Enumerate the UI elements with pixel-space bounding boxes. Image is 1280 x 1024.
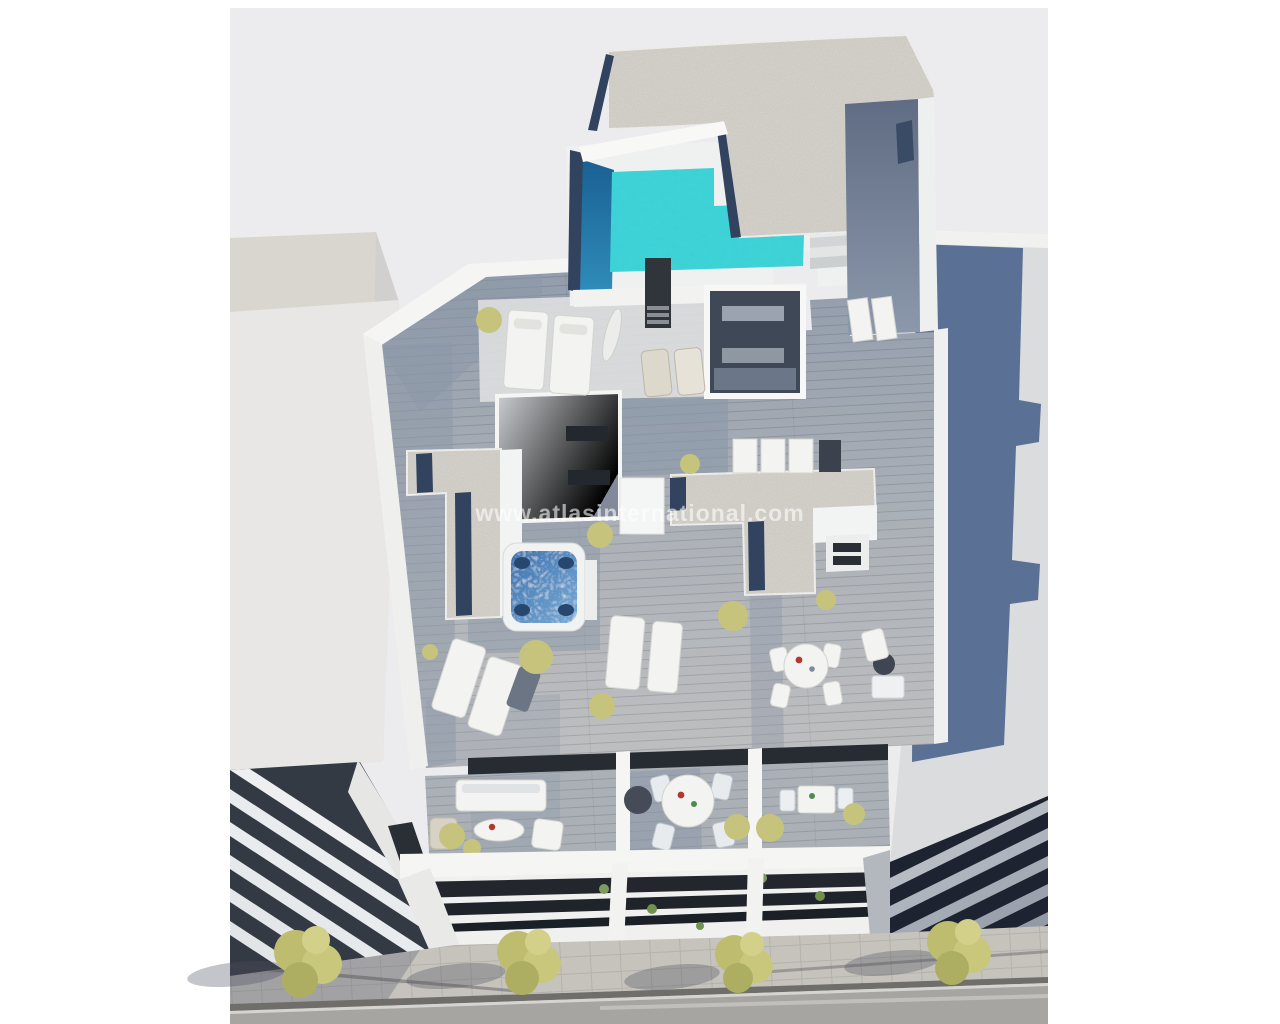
facade-plant (696, 922, 704, 930)
table-decor (796, 657, 803, 664)
box-window (833, 556, 861, 565)
jacuzzi-seat (514, 557, 530, 569)
tree-foliage (955, 919, 981, 945)
tree-foliage (282, 962, 318, 998)
facade-plant (647, 904, 657, 914)
skylight-window (568, 470, 610, 485)
jacuzzi-seat (558, 557, 574, 569)
lounger (605, 615, 645, 690)
lounger (733, 439, 757, 473)
box-window (833, 543, 861, 552)
potted-plant (476, 307, 502, 333)
lounger (761, 439, 785, 473)
roof-box-windows (826, 534, 869, 572)
terrace-parapet-right (934, 328, 948, 744)
planter-glass-edge (416, 453, 433, 493)
planter-glass-edge (748, 521, 765, 591)
pool-equipment-panel (645, 258, 671, 328)
round-table (662, 775, 714, 827)
chair (780, 790, 795, 811)
panel-slat (647, 306, 669, 310)
potted-plant (680, 454, 700, 474)
facade-plant (599, 884, 609, 894)
equipment-panel (645, 258, 671, 328)
skylight-window (566, 426, 608, 441)
jacuzzi-seat (514, 604, 530, 616)
table-decor (489, 824, 495, 830)
corridor-dark-wall (896, 120, 914, 164)
room-window-slot (722, 348, 784, 363)
round-dining-table (784, 644, 828, 688)
tree-foliage (505, 961, 539, 995)
lounger-towel (559, 323, 588, 335)
potted-plant (589, 693, 615, 719)
render-canvas: www.atlasinternational.com (0, 0, 1280, 1024)
table-decor (678, 792, 685, 799)
tree-foliage (740, 932, 764, 956)
balcony-plant (756, 814, 784, 842)
lounger (789, 439, 813, 473)
potted-plant (718, 601, 748, 631)
table-decor (691, 801, 697, 807)
planter-glass-edge (455, 492, 472, 616)
tree-foliage (723, 963, 753, 993)
architectural-render: www.atlasinternational.com (0, 0, 1280, 1024)
room-floor (714, 368, 796, 390)
jacuzzi (503, 543, 597, 631)
armchair (531, 818, 564, 851)
panel-slat (647, 320, 669, 324)
jacuzzi-seat (558, 604, 574, 616)
lounger-towel (513, 318, 542, 330)
sofa-cushions (462, 784, 540, 793)
balcony-plant (843, 803, 865, 825)
tree-foliage (935, 951, 969, 985)
potted-plant (519, 640, 553, 674)
side-table (872, 676, 904, 698)
dining-chair (822, 681, 843, 707)
deck-shadow-center (622, 397, 728, 476)
potted-plant (816, 590, 836, 610)
dark-parasol (624, 786, 652, 814)
bistro-table (798, 786, 835, 813)
wicker-lounger (674, 347, 706, 396)
wicker-lounger (641, 349, 673, 398)
jacuzzi-step (585, 560, 597, 620)
tree-foliage (525, 929, 551, 955)
lounger (647, 621, 683, 693)
dark-chair (819, 440, 841, 472)
watermark-text: www.atlasinternational.com (474, 500, 804, 526)
panel-slat (647, 313, 669, 317)
table-decor (809, 666, 815, 672)
coffee-table (474, 819, 524, 841)
room-window-slot (722, 306, 784, 321)
roof-access-room (707, 288, 803, 396)
table-decor (809, 793, 815, 799)
facade-plant (815, 891, 825, 901)
facade-pier (746, 857, 764, 931)
balcony-plant (439, 823, 465, 849)
potted-plant (422, 644, 438, 660)
balcony-plant (724, 814, 750, 840)
tree-foliage (302, 926, 330, 954)
